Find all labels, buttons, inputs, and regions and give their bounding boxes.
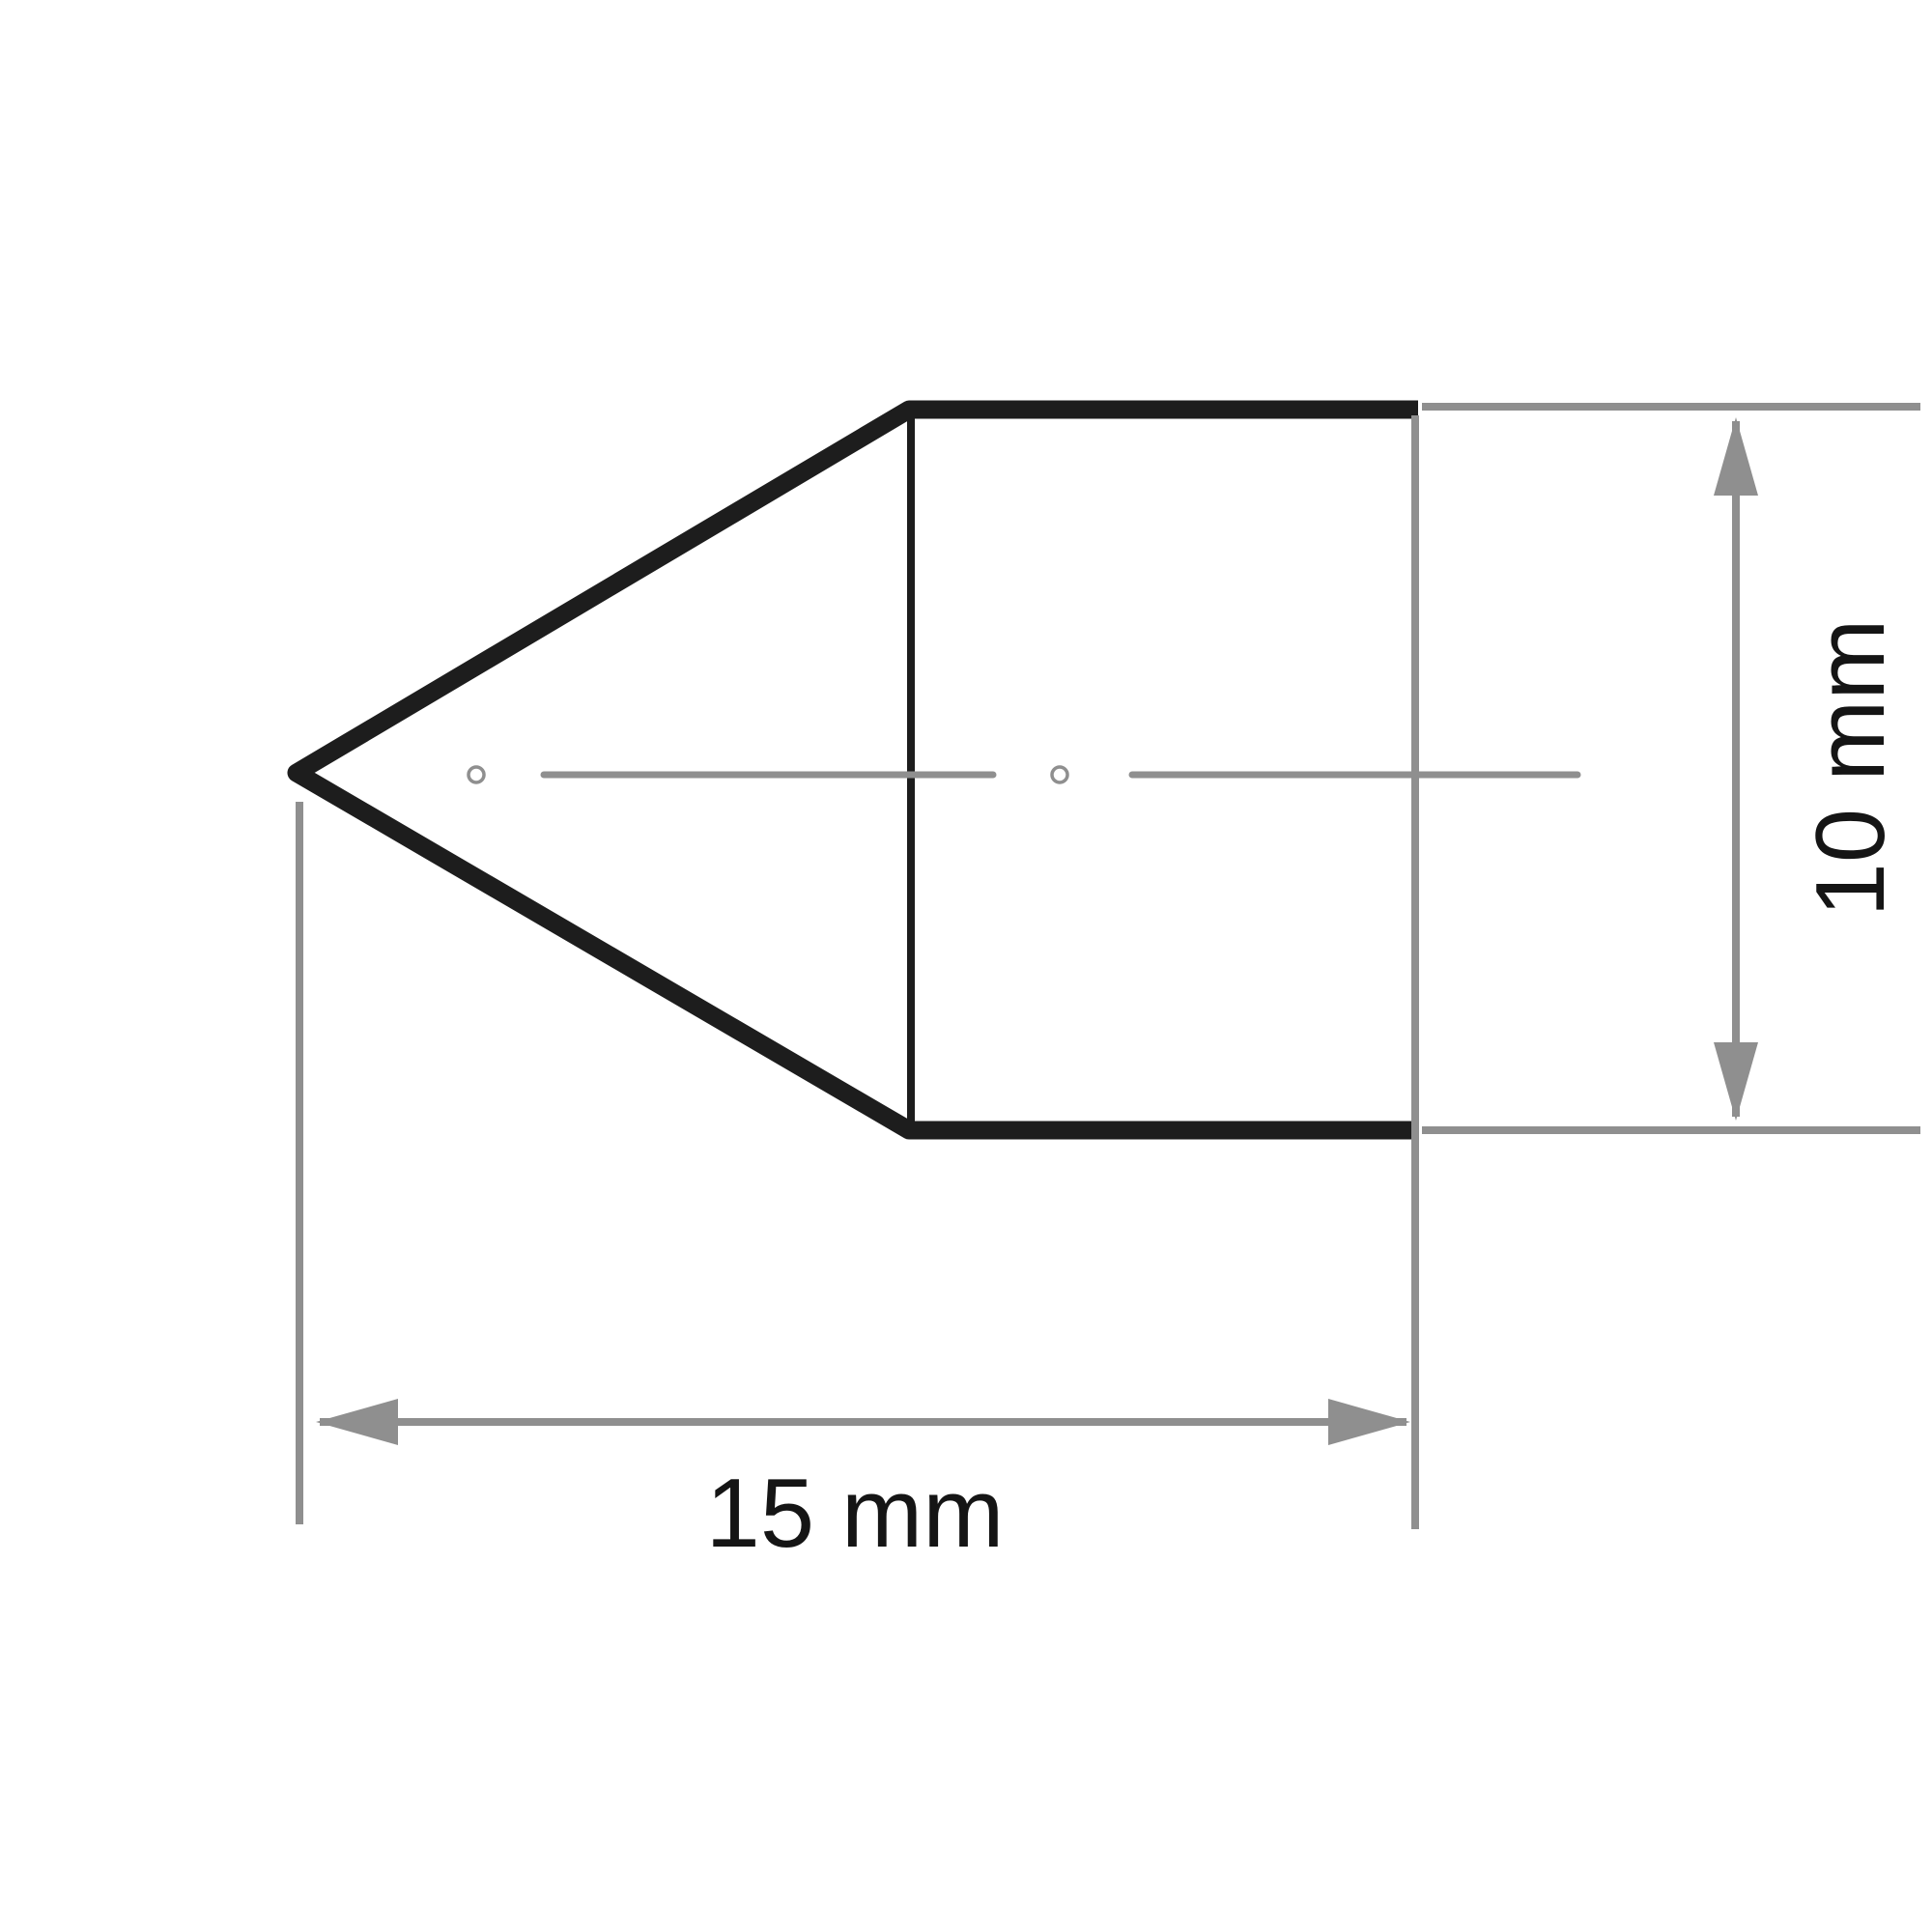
drawing-canvas: 15 mm 10 mm <box>0 0 1932 1932</box>
diameter-dimension-label: 10 mm <box>1797 619 1905 918</box>
part-outline <box>297 410 1418 1130</box>
arrow-left-icon <box>316 1399 398 1445</box>
centerline-dot <box>1052 767 1067 782</box>
arrow-up-icon <box>1714 417 1758 496</box>
arrow-down-icon <box>1714 1042 1758 1121</box>
length-dimension-label: 15 mm <box>706 1460 1005 1568</box>
technical-drawing: 15 mm 10 mm <box>0 0 1932 1932</box>
arrow-right-icon <box>1328 1399 1410 1445</box>
centerline-dot <box>469 767 484 782</box>
